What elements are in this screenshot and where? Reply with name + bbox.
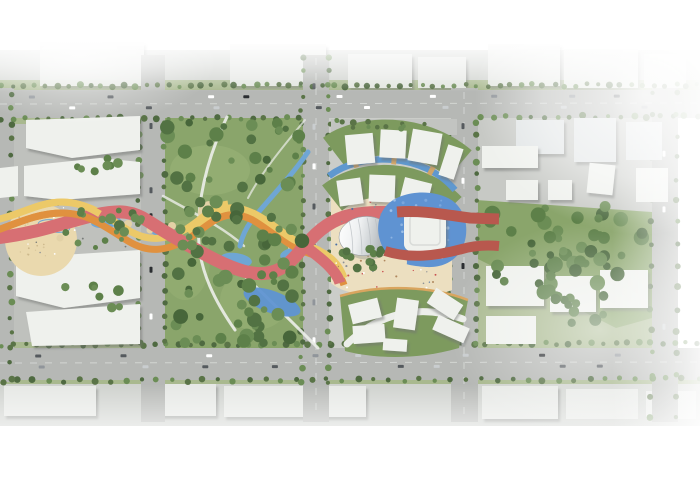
tree	[91, 167, 99, 175]
tree	[255, 174, 266, 185]
street-tree	[473, 159, 480, 166]
texture-dot	[376, 286, 378, 288]
texture-dot	[432, 281, 434, 283]
street-tree	[327, 289, 332, 294]
car	[313, 354, 319, 357]
street-tree	[339, 379, 344, 384]
building	[383, 338, 408, 352]
tree	[95, 293, 103, 301]
tree	[531, 207, 546, 222]
tree	[375, 125, 380, 130]
car	[243, 95, 249, 98]
street-tree	[310, 377, 316, 383]
car	[462, 123, 465, 129]
texture-dot	[446, 226, 449, 229]
texture-dot	[363, 272, 365, 274]
street-tree	[327, 301, 332, 306]
car	[462, 178, 465, 184]
tree	[350, 119, 357, 126]
street-tree	[9, 135, 15, 141]
street-tree	[247, 377, 253, 383]
tree	[353, 264, 362, 273]
texture-dot	[362, 273, 364, 275]
street-tree	[298, 108, 303, 113]
street-tree	[163, 209, 168, 214]
tree	[215, 333, 226, 344]
tree	[263, 156, 271, 164]
car	[462, 263, 465, 269]
street-tree	[326, 107, 331, 112]
street-tree	[7, 285, 12, 290]
texture-dot	[426, 271, 427, 272]
texture-dot	[351, 208, 353, 210]
texture-dot	[338, 266, 339, 267]
texture-dot	[125, 246, 127, 248]
texture-dot	[400, 223, 403, 226]
tree	[261, 306, 268, 313]
tree	[184, 207, 195, 218]
street-tree	[299, 316, 304, 321]
texture-dot	[382, 271, 383, 272]
building	[379, 129, 406, 158]
street-tree	[301, 289, 306, 294]
street-tree	[278, 378, 283, 383]
tree	[91, 285, 97, 291]
tree	[206, 176, 213, 183]
street-tree	[29, 376, 36, 383]
street-tree	[170, 378, 174, 382]
tree	[172, 267, 185, 280]
street-tree	[371, 377, 375, 381]
tree	[102, 237, 109, 244]
tree	[237, 300, 247, 310]
tree	[105, 213, 116, 224]
street-tree	[162, 300, 167, 305]
tree	[61, 283, 69, 291]
street-tree	[386, 378, 391, 383]
building	[369, 175, 396, 203]
street-tree	[92, 378, 99, 385]
tree	[178, 144, 192, 158]
tree	[170, 171, 183, 184]
car	[398, 365, 404, 368]
street-tree	[46, 378, 52, 384]
car	[39, 366, 45, 369]
car	[150, 267, 153, 273]
street-tree	[203, 117, 207, 121]
street-tree	[300, 339, 305, 344]
tree	[103, 161, 112, 170]
car	[121, 354, 127, 357]
texture-dot	[447, 239, 449, 241]
texture-dot	[413, 270, 414, 271]
street-tree	[163, 325, 168, 330]
street-tree	[239, 117, 244, 122]
texture-dot	[390, 209, 393, 212]
tree	[160, 120, 175, 135]
tree	[285, 289, 298, 302]
street-tree	[7, 271, 14, 278]
car	[313, 204, 316, 210]
tree	[246, 119, 258, 131]
tree	[366, 125, 370, 129]
building	[345, 133, 376, 165]
street-tree	[476, 146, 481, 151]
texture-dot	[420, 269, 422, 271]
street-tree	[301, 302, 305, 306]
tree	[283, 126, 289, 132]
street-tree	[61, 380, 66, 385]
car	[272, 365, 278, 368]
tree	[283, 331, 297, 345]
tree	[368, 245, 375, 252]
tree	[185, 119, 193, 127]
car	[143, 365, 149, 368]
car	[206, 354, 212, 357]
tree	[246, 134, 256, 144]
tree	[244, 307, 253, 316]
street-tree	[326, 94, 330, 98]
texture-dot	[347, 274, 349, 276]
tree	[193, 335, 202, 344]
tree	[259, 254, 270, 265]
street-tree	[108, 379, 113, 384]
street-tree	[153, 115, 160, 122]
texture-dot	[345, 265, 347, 267]
car	[364, 106, 370, 109]
street-tree	[264, 376, 269, 381]
tree	[269, 271, 277, 279]
tree	[192, 227, 200, 235]
tree	[116, 208, 122, 214]
street-tree	[299, 262, 306, 269]
tree	[277, 279, 289, 291]
street-tree	[301, 277, 305, 281]
street-tree	[152, 342, 158, 348]
tree	[257, 229, 269, 241]
texture-dot	[20, 251, 21, 252]
tree	[249, 295, 261, 307]
street-tree	[9, 121, 15, 127]
tree	[187, 258, 196, 267]
texture-dot	[36, 245, 38, 247]
tree	[422, 122, 426, 126]
texture-dot	[82, 238, 84, 240]
street-tree	[161, 184, 166, 189]
street-tree	[179, 116, 184, 121]
tree	[237, 182, 248, 193]
texture-dot	[424, 199, 427, 202]
tree	[267, 213, 276, 222]
street-tree	[224, 342, 231, 349]
street-tree	[77, 376, 83, 382]
tree	[281, 178, 295, 192]
tree	[292, 130, 305, 143]
planter-circle	[57, 235, 64, 242]
tree	[99, 216, 106, 223]
texture-dot	[24, 224, 26, 226]
street-tree	[7, 360, 12, 365]
street-tree	[328, 341, 332, 345]
street-tree	[355, 376, 362, 383]
building	[393, 298, 419, 331]
street-tree	[8, 316, 12, 320]
street-tree	[326, 161, 330, 165]
street-tree	[229, 378, 235, 384]
texture-dot	[393, 199, 396, 202]
tree	[351, 125, 355, 129]
car	[150, 187, 153, 193]
tree	[107, 303, 117, 313]
street-tree	[162, 288, 168, 294]
tree	[257, 270, 266, 279]
car	[443, 106, 449, 109]
texture-dot	[43, 244, 45, 246]
street-tree	[301, 198, 306, 203]
tree	[275, 126, 283, 134]
street-tree	[214, 114, 220, 120]
building	[0, 166, 18, 198]
tree	[196, 313, 204, 321]
street-tree	[9, 376, 16, 383]
street-tree	[299, 365, 306, 372]
tree	[210, 195, 223, 208]
tree	[365, 258, 373, 266]
street-tree	[162, 273, 168, 279]
street-tree	[301, 212, 306, 217]
south-building-cluster	[340, 288, 470, 357]
tree	[237, 334, 251, 348]
texture-dot	[401, 230, 404, 233]
tree	[275, 225, 282, 232]
tree	[202, 206, 214, 218]
street-tree	[7, 345, 13, 351]
street-tree	[296, 115, 302, 121]
building	[336, 177, 363, 206]
texture-dot	[53, 217, 55, 219]
street-tree	[153, 377, 159, 383]
street-tree	[261, 115, 267, 121]
car	[434, 365, 440, 368]
street-tree	[447, 377, 453, 383]
tree	[131, 214, 140, 223]
tree	[208, 237, 217, 246]
car	[313, 124, 316, 130]
texture-dot	[63, 207, 64, 208]
texture-dot	[74, 229, 76, 231]
car	[430, 95, 436, 98]
tree	[383, 124, 388, 129]
tree	[77, 209, 84, 216]
tree	[113, 158, 123, 168]
texture-dot	[45, 255, 46, 256]
street-tree	[124, 378, 130, 384]
tree	[119, 237, 124, 242]
tree	[113, 285, 124, 296]
tree	[234, 319, 243, 328]
tree	[180, 337, 191, 348]
street-tree	[301, 95, 305, 99]
tree	[78, 165, 85, 172]
street-tree	[325, 329, 331, 335]
texture-dot	[440, 200, 442, 202]
street-tree	[24, 342, 28, 346]
street-tree	[162, 339, 167, 344]
car	[208, 95, 214, 98]
street-tree	[298, 355, 302, 359]
texture-dot	[335, 243, 337, 245]
aerial-master-plan	[0, 0, 700, 485]
tree	[93, 245, 98, 250]
street-tree	[327, 315, 334, 322]
car	[150, 314, 153, 320]
texture-dot	[423, 282, 425, 284]
street-tree	[433, 379, 437, 383]
texture-dot	[391, 237, 393, 239]
street-tree	[216, 377, 220, 381]
street-tree	[402, 379, 407, 384]
car	[313, 299, 316, 305]
car	[214, 106, 220, 109]
car	[337, 95, 343, 98]
tree	[220, 123, 227, 130]
texture-dot	[343, 261, 345, 263]
tree	[224, 241, 235, 252]
tree	[295, 233, 310, 248]
texture-dot	[27, 223, 29, 225]
texture-dot	[402, 201, 405, 204]
tree	[376, 250, 383, 257]
tree	[119, 227, 129, 237]
street-tree	[475, 198, 479, 202]
tree	[75, 240, 82, 247]
master-plan-canvas	[0, 0, 700, 485]
tree	[173, 309, 188, 324]
street-tree	[199, 376, 205, 382]
tree	[268, 233, 281, 246]
tree	[228, 157, 234, 163]
tree	[506, 226, 517, 237]
tree	[209, 127, 223, 141]
tree	[401, 124, 405, 128]
building	[24, 158, 140, 200]
texture-dot	[439, 204, 442, 207]
texture-dot	[54, 253, 56, 255]
street-tree	[298, 185, 303, 190]
texture-dot	[346, 286, 348, 288]
street-tree	[325, 364, 332, 371]
texture-dot	[360, 260, 362, 262]
texture-dot	[335, 262, 337, 264]
street-tree	[10, 330, 14, 334]
texture-dot	[375, 204, 377, 206]
tree	[335, 118, 340, 123]
texture-dot	[429, 281, 430, 282]
tree	[277, 257, 289, 269]
car	[202, 365, 208, 368]
texture-dot	[395, 275, 397, 277]
tree	[242, 278, 257, 293]
texture-dot	[28, 247, 30, 249]
building	[407, 129, 442, 166]
street-tree	[473, 132, 479, 138]
tree	[184, 289, 193, 298]
tree	[272, 308, 285, 321]
tree	[220, 276, 228, 284]
street-tree	[163, 261, 169, 267]
street-tree	[8, 153, 13, 158]
street-tree	[140, 377, 144, 381]
tree	[267, 167, 273, 173]
texture-dot	[39, 252, 41, 254]
texture-dot	[36, 242, 38, 244]
texture-dot	[27, 254, 29, 256]
street-tree	[474, 171, 479, 176]
tree	[292, 153, 299, 160]
tree	[365, 119, 371, 125]
street-tree	[327, 353, 332, 358]
street-tree	[475, 185, 481, 191]
tree	[206, 140, 213, 147]
tree	[186, 234, 193, 241]
texture-dot	[341, 221, 342, 222]
texture-dot	[35, 250, 36, 251]
street-tree	[324, 376, 328, 380]
tree	[176, 224, 186, 234]
tree	[62, 229, 69, 236]
street-tree	[327, 237, 332, 242]
car	[150, 123, 153, 129]
tree	[232, 215, 242, 225]
texture-dot	[374, 206, 376, 208]
tree	[343, 247, 351, 255]
texture-dot	[384, 260, 386, 262]
street-tree	[162, 314, 168, 320]
building	[352, 324, 385, 344]
tree	[195, 197, 205, 207]
tree	[259, 339, 268, 348]
tree	[183, 180, 192, 189]
street-tree	[475, 237, 479, 241]
street-tree	[211, 342, 216, 347]
street-tree	[326, 198, 331, 203]
street-tree	[300, 225, 305, 230]
tree	[286, 224, 297, 235]
street-tree	[476, 224, 481, 229]
car	[316, 106, 322, 109]
texture-dot	[27, 243, 28, 244]
tree	[116, 303, 123, 310]
tree	[340, 119, 345, 124]
street-tree	[284, 114, 290, 120]
tree	[178, 240, 189, 251]
tree	[249, 152, 261, 164]
texture-dot	[435, 274, 437, 276]
street-tree	[301, 174, 305, 178]
street-tree	[161, 171, 168, 178]
street-tree	[161, 144, 167, 150]
car	[313, 163, 316, 169]
street-tree	[162, 158, 167, 163]
street-tree	[416, 376, 421, 381]
street-tree	[9, 299, 16, 306]
car	[355, 354, 361, 357]
street-tree	[272, 341, 277, 346]
street-tree	[135, 198, 140, 203]
texture-dot	[43, 246, 45, 248]
street-tree	[190, 115, 194, 119]
car	[35, 355, 41, 358]
